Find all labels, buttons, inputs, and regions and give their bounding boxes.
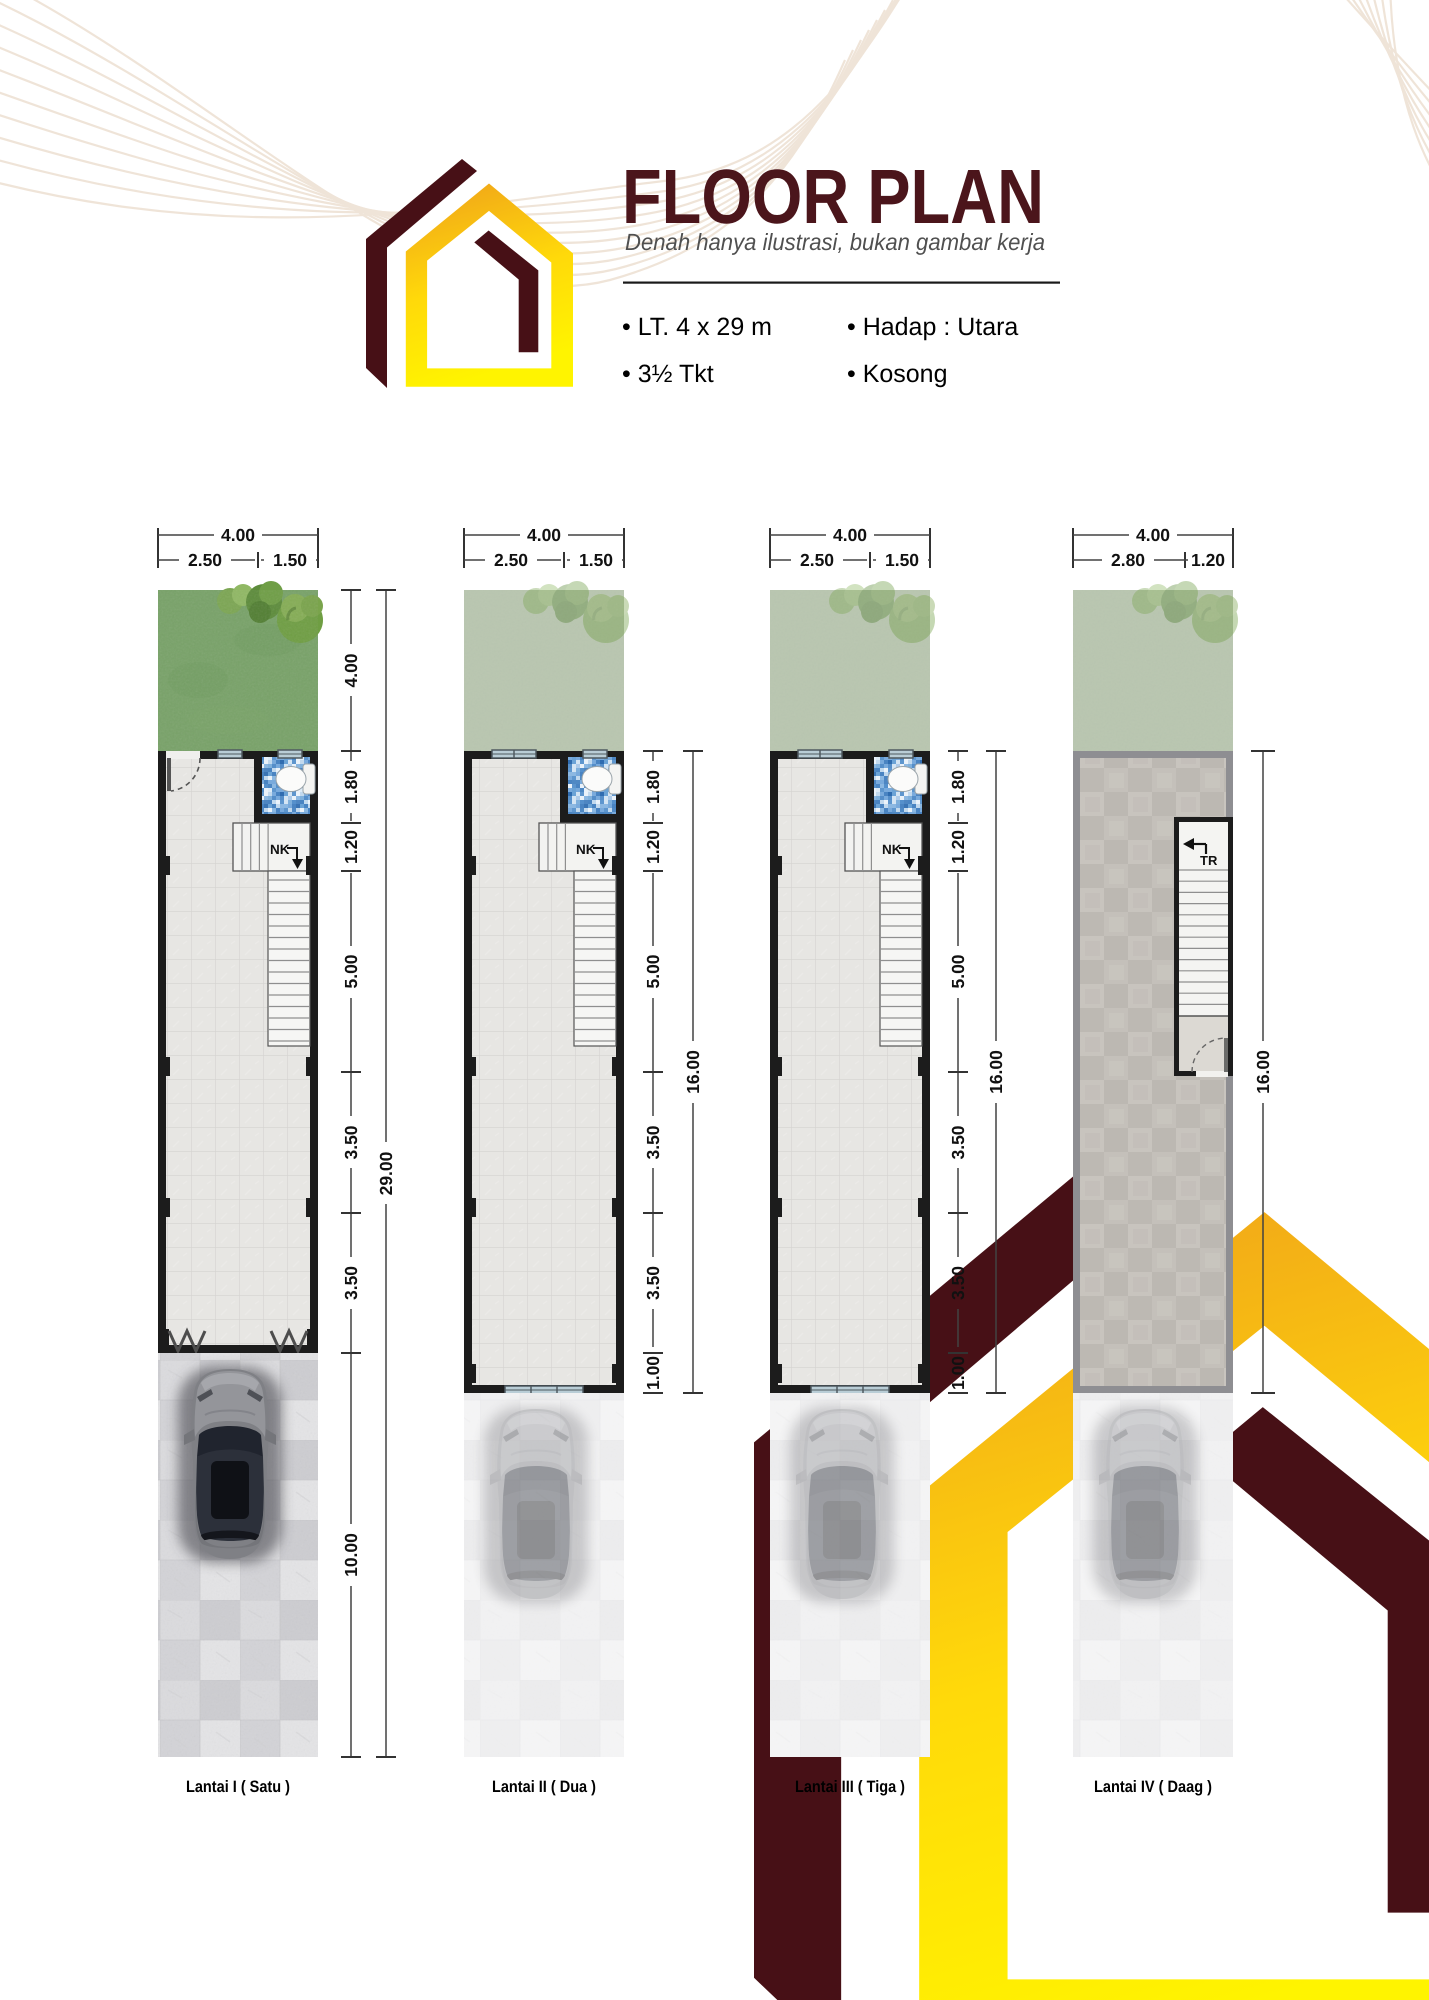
svg-text:• Kosong: • Kosong	[847, 360, 948, 388]
svg-text:3.50: 3.50	[341, 1266, 361, 1300]
svg-text:29.00: 29.00	[376, 1151, 396, 1195]
svg-text:Denah hanya ilustrasi, bukan g: Denah hanya ilustrasi, bukan gambar kerj…	[625, 229, 1045, 255]
svg-text:2.50: 2.50	[188, 550, 222, 570]
svg-text:10.00: 10.00	[341, 1533, 361, 1577]
svg-text:NK: NK	[576, 842, 596, 857]
svg-text:1.50: 1.50	[579, 550, 613, 570]
svg-text:NK: NK	[270, 842, 290, 857]
svg-text:1.20: 1.20	[341, 830, 361, 864]
svg-text:Lantai II ( Dua ): Lantai II ( Dua )	[492, 1778, 596, 1796]
svg-text:5.00: 5.00	[643, 954, 663, 988]
svg-text:16.00: 16.00	[683, 1050, 703, 1094]
svg-text:4.00: 4.00	[221, 525, 255, 545]
svg-text:5.00: 5.00	[341, 954, 361, 988]
svg-text:4.00: 4.00	[833, 525, 867, 545]
svg-text:• LT. 4 x 29 m: • LT. 4 x 29 m	[622, 313, 772, 341]
svg-text:1.20: 1.20	[643, 830, 663, 864]
svg-text:FLOOR PLAN: FLOOR PLAN	[622, 154, 1044, 240]
svg-text:Lantai III ( Tiga ): Lantai III ( Tiga )	[795, 1778, 905, 1796]
svg-text:4.00: 4.00	[527, 525, 561, 545]
svg-text:1.00: 1.00	[643, 1356, 663, 1390]
svg-text:• 3½ Tkt: • 3½ Tkt	[622, 360, 714, 388]
svg-text:4.00: 4.00	[341, 653, 361, 687]
svg-text:2.50: 2.50	[800, 550, 834, 570]
svg-text:Lantai IV ( Daag ): Lantai IV ( Daag )	[1094, 1778, 1212, 1796]
svg-text:4.00: 4.00	[1136, 525, 1170, 545]
svg-text:1.80: 1.80	[341, 770, 361, 804]
svg-text:1.80: 1.80	[643, 770, 663, 804]
svg-text:2.80: 2.80	[1111, 550, 1145, 570]
svg-text:1.00: 1.00	[948, 1356, 968, 1390]
svg-text:1.20: 1.20	[948, 830, 968, 864]
svg-text:2.50: 2.50	[494, 550, 528, 570]
svg-text:1.20: 1.20	[1191, 550, 1225, 570]
svg-text:16.00: 16.00	[1253, 1050, 1273, 1094]
svg-text:16.00: 16.00	[986, 1050, 1006, 1094]
svg-text:3.50: 3.50	[948, 1266, 968, 1300]
svg-text:5.00: 5.00	[948, 954, 968, 988]
svg-text:3.50: 3.50	[643, 1266, 663, 1300]
svg-text:3.50: 3.50	[948, 1125, 968, 1159]
svg-text:3.50: 3.50	[643, 1125, 663, 1159]
svg-text:1.50: 1.50	[273, 550, 307, 570]
svg-text:TR: TR	[1200, 853, 1218, 868]
svg-text:NK: NK	[882, 842, 902, 857]
svg-text:Lantai I ( Satu ): Lantai I ( Satu )	[186, 1778, 290, 1796]
svg-text:3.50: 3.50	[341, 1125, 361, 1159]
svg-text:1.50: 1.50	[885, 550, 919, 570]
svg-text:• Hadap : Utara: • Hadap : Utara	[847, 313, 1018, 341]
svg-text:1.80: 1.80	[948, 770, 968, 804]
